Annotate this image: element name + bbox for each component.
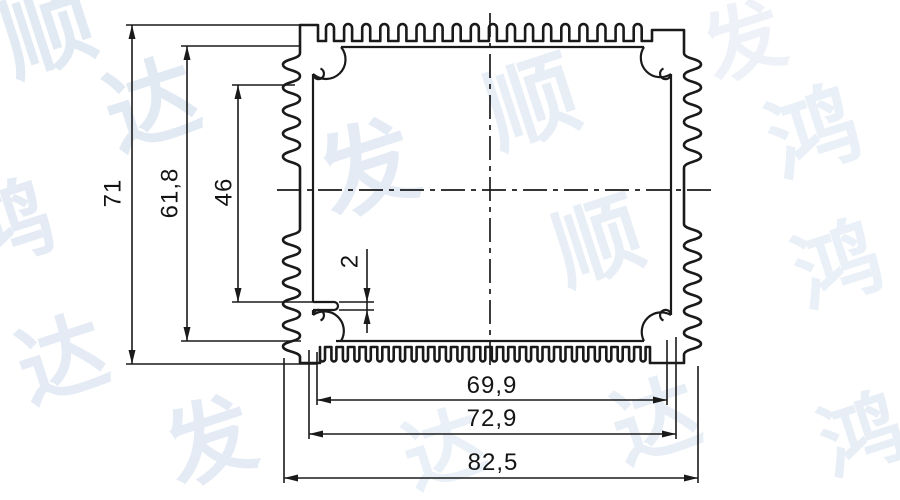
watermark-glyph: 鸿 [0, 165, 65, 286]
watermark-glyph: 达 [92, 43, 211, 168]
watermark-glyph: 鸿 [782, 207, 893, 325]
watermark-glyph: 鸿 [809, 380, 900, 492]
dim-ledge-thickness-2-arrowhead [364, 288, 371, 302]
watermark-glyph: 达 [600, 363, 711, 481]
screw-boss-bottom-right [642, 312, 671, 341]
dim-label-ledge-thickness: 2 [337, 254, 364, 268]
watermark-glyph: 发 [306, 104, 430, 235]
watermark-glyph: 顺 [0, 0, 108, 95]
dim-inner-height-61-8-arrowhead [184, 327, 191, 341]
dim-inner-height-61-8-arrowhead [184, 46, 191, 60]
watermark-glyph: 发 [153, 381, 267, 500]
dim-label-inner-height: 61,8 [157, 168, 184, 219]
dim-inner-width-69-9-arrowhead [317, 397, 331, 404]
dim-overall-height-71-arrowhead [129, 350, 136, 364]
watermark-glyph: 达 [5, 299, 119, 420]
screw-boss-bottom-left [313, 311, 344, 341]
dim-cavity-height-46-arrowhead [235, 85, 242, 99]
profile-drawing: 顺达鸿发顺顺鸿鸿达发达达鸿发 71 61,8 46 2 69,9 72,9 82… [0, 0, 900, 500]
watermark-glyph: 发 [692, 0, 796, 97]
pcb-ledge [313, 302, 338, 310]
watermark-glyph: 鸿 [756, 73, 872, 196]
dim-body-width-72-9-arrowhead [309, 431, 323, 438]
dim-label-body-width: 72,9 [467, 405, 518, 432]
screw-boss-top-right [641, 47, 671, 77]
watermark-glyph: 顺 [541, 181, 655, 302]
watermark-layer: 顺达鸿发顺顺鸿鸿达发达达鸿发 [0, 0, 900, 500]
dim-label-overall-width: 82,5 [468, 449, 519, 476]
dim-overall-height-71-arrowhead [129, 25, 136, 39]
dim-label-inner-width: 69,9 [467, 372, 518, 399]
dim-overall-width-82-5-arrowhead [684, 475, 698, 482]
dim-label-cavity-height: 46 [211, 178, 238, 207]
drawing-canvas: 顺达鸿发顺顺鸿鸿达发达达鸿发 71 61,8 46 2 69,9 72,9 82… [0, 0, 900, 500]
screw-boss-top-left [313, 47, 346, 79]
dim-overall-width-82-5-arrowhead [284, 475, 298, 482]
dim-ledge-thickness-2-arrowhead [364, 310, 371, 324]
dim-label-overall-height: 71 [100, 179, 127, 208]
dim-cavity-height-46-arrowhead [235, 288, 242, 302]
